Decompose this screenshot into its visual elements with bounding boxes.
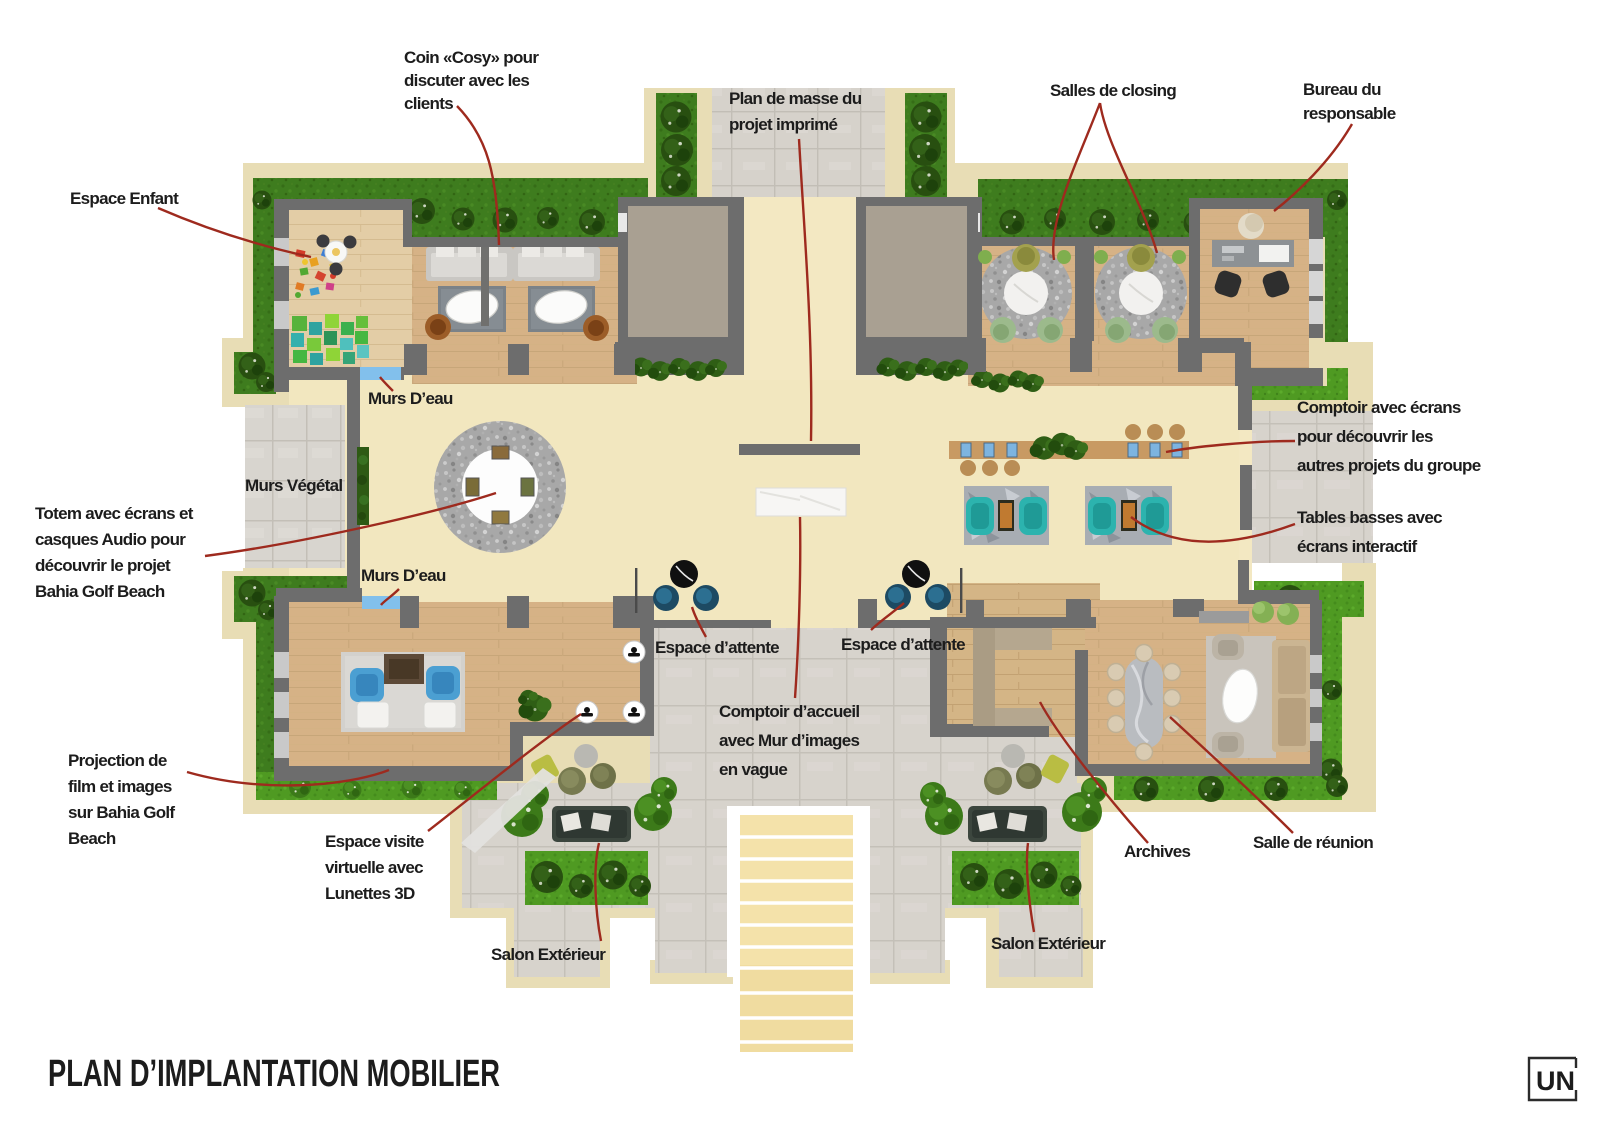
svg-text:Coin «Cosy» pour: Coin «Cosy» pour (404, 48, 539, 67)
svg-text:Espace Enfant: Espace Enfant (70, 189, 179, 208)
svg-text:Projection de: Projection de (68, 751, 167, 770)
svg-text:Espace d’attente: Espace d’attente (655, 638, 779, 657)
svg-text:écrans interactif: écrans interactif (1297, 537, 1417, 556)
svg-text:Lunettes 3D: Lunettes 3D (325, 884, 415, 903)
svg-text:Espace d’attente: Espace d’attente (841, 635, 965, 654)
svg-text:projet imprimé: projet imprimé (729, 115, 838, 134)
svg-text:Murs D’eau: Murs D’eau (368, 389, 453, 408)
svg-text:en vague: en vague (719, 760, 787, 779)
svg-text:pour découvrir les: pour découvrir les (1297, 427, 1433, 446)
svg-text:Murs Végétal: Murs Végétal (245, 476, 342, 495)
svg-text:Murs D’eau: Murs D’eau (361, 566, 446, 585)
svg-text:casques Audio pour: casques Audio pour (35, 530, 186, 549)
svg-text:Totem avec écrans et: Totem avec écrans et (35, 504, 194, 523)
svg-text:Salon Extérieur: Salon Extérieur (491, 945, 606, 964)
svg-text:autres projets du groupe: autres projets du groupe (1297, 456, 1481, 475)
svg-text:Plan de masse du: Plan de masse du (729, 89, 862, 108)
svg-text:découvrir le projet: découvrir le projet (35, 556, 171, 575)
svg-text:Beach: Beach (68, 829, 116, 848)
svg-text:Salle de réunion: Salle de réunion (1253, 833, 1373, 852)
svg-text:virtuelle avec: virtuelle avec (325, 858, 423, 877)
svg-text:responsable: responsable (1303, 104, 1396, 123)
svg-text:UN: UN (1536, 1066, 1575, 1096)
svg-text:sur Bahia Golf: sur Bahia Golf (68, 803, 175, 822)
svg-text:PLAN D’IMPLANTATION MOBILIER: PLAN D’IMPLANTATION MOBILIER (48, 1053, 500, 1095)
svg-text:discuter avec les: discuter avec les (404, 71, 529, 90)
svg-text:Salles de closing: Salles de closing (1050, 81, 1176, 100)
svg-text:film et images: film et images (68, 777, 172, 796)
svg-text:Bahia Golf Beach: Bahia Golf Beach (35, 582, 165, 601)
svg-text:Comptoir d’accueil: Comptoir d’accueil (719, 702, 859, 721)
svg-text:Bureau du: Bureau du (1303, 80, 1381, 99)
svg-text:Archives: Archives (1124, 842, 1190, 861)
svg-text:avec Mur d’images: avec Mur d’images (719, 731, 859, 750)
svg-text:Comptoir avec écrans: Comptoir avec écrans (1297, 398, 1461, 417)
svg-text:Tables basses avec: Tables basses avec (1297, 508, 1442, 527)
svg-text:clients: clients (404, 94, 453, 113)
svg-text:Salon Extérieur: Salon Extérieur (991, 934, 1106, 953)
svg-text:Espace visite: Espace visite (325, 832, 424, 851)
